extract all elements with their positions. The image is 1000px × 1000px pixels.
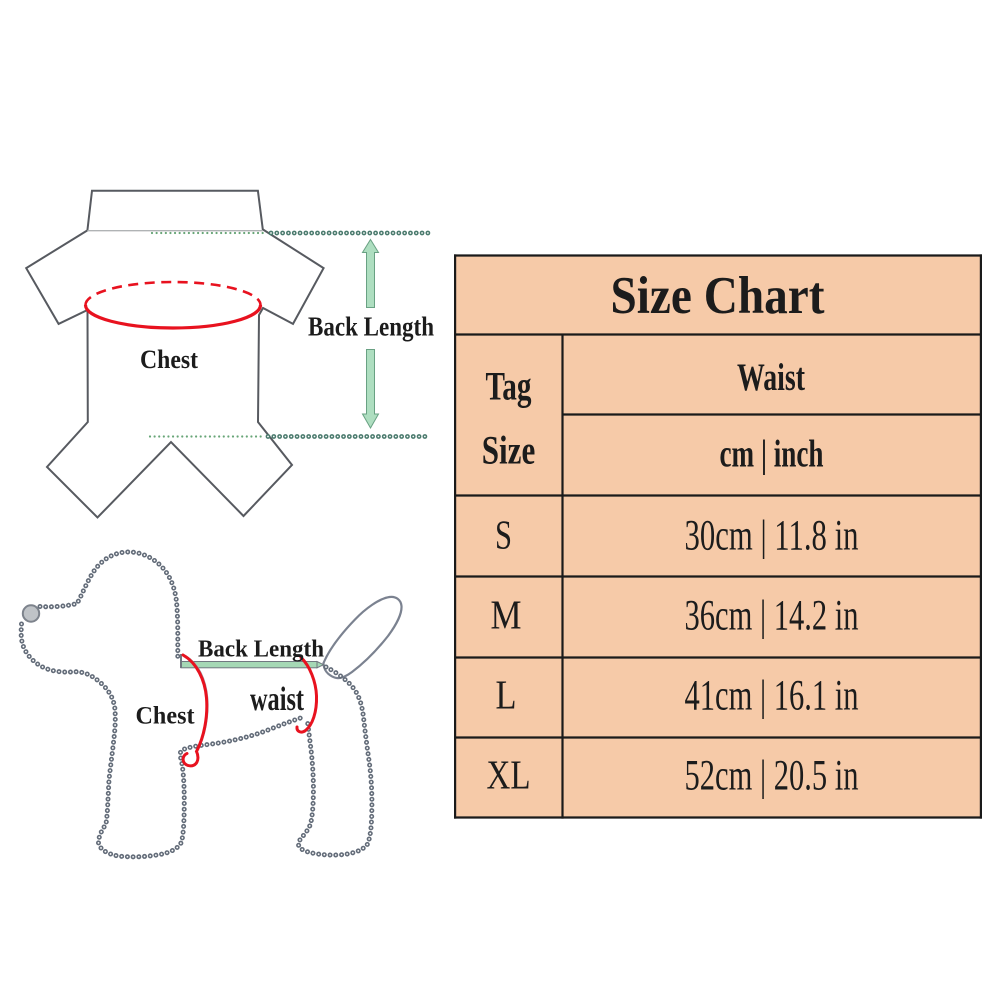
svg-text:30cm | 11.8 in: 30cm | 11.8 in [685,513,859,560]
svg-text:L: L [496,672,517,718]
svg-text:Tag: Tag [486,364,532,409]
svg-text:cm | inch: cm | inch [720,433,824,476]
svg-text:41cm | 16.1 in: 41cm | 16.1 in [685,673,859,720]
svg-text:Waist: Waist [737,356,805,399]
svg-text:Chest: Chest [136,703,196,730]
svg-text:36cm | 14.2 in: 36cm | 14.2 in [685,593,859,640]
svg-text:M: M [491,592,522,638]
svg-text:52cm | 20.5 in: 52cm | 20.5 in [685,753,859,800]
svg-text:Chest: Chest [140,345,198,374]
svg-text:Back Length: Back Length [198,637,324,663]
svg-text:XL: XL [487,752,531,798]
svg-text:Size: Size [482,428,536,473]
svg-text:Back Length: Back Length [308,312,434,342]
svg-text:S: S [495,512,512,558]
svg-text:waist: waist [250,681,304,718]
svg-text:Size Chart: Size Chart [611,267,825,325]
